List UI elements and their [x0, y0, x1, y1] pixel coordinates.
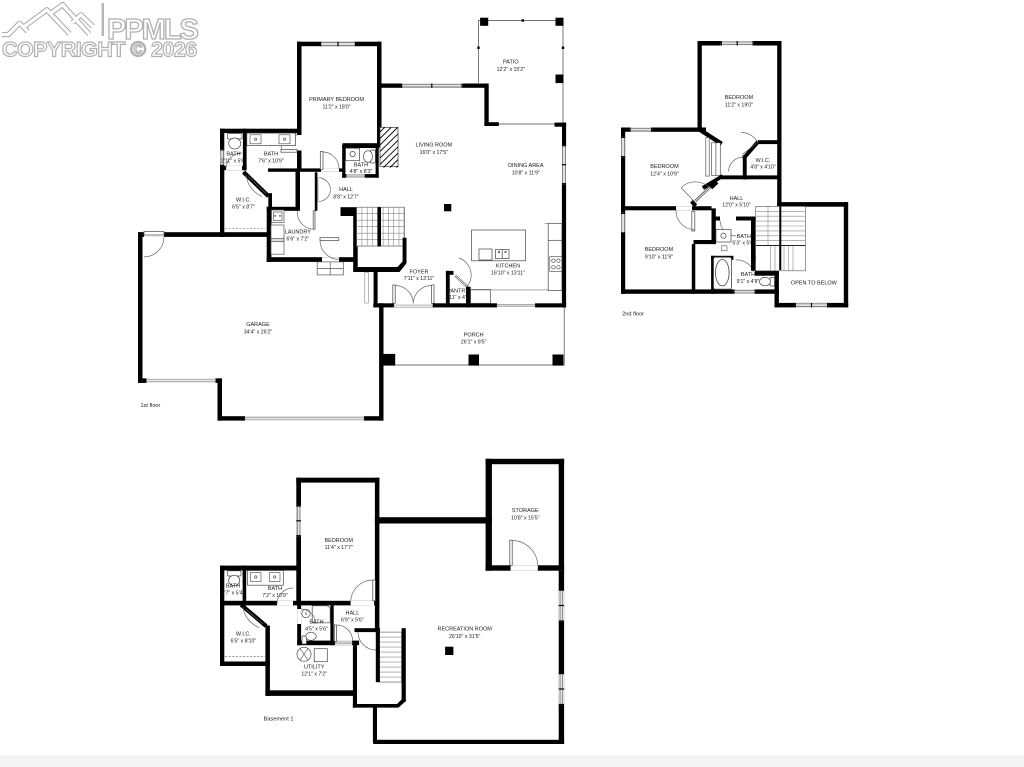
- svg-text:HALL: HALL: [730, 196, 744, 202]
- svg-text:6'9" x 5'6": 6'9" x 5'6": [341, 618, 364, 624]
- svg-text:4'8" x 8'3": 4'8" x 8'3": [350, 169, 373, 175]
- svg-text:10'8" x 11'9": 10'8" x 11'9": [512, 171, 540, 177]
- svg-text:6'5" x 8'10": 6'5" x 8'10": [231, 639, 257, 645]
- svg-text:RECREATION ROOM: RECREATION ROOM: [438, 627, 493, 633]
- svg-text:HALL: HALL: [339, 187, 353, 193]
- svg-text:34'4" x 26'2": 34'4" x 26'2": [244, 329, 273, 335]
- svg-text:11'2" x 19'0": 11'2" x 19'0": [725, 102, 753, 108]
- svg-text:4'8" x 4'10": 4'8" x 4'10": [750, 164, 776, 170]
- svg-text:16'0" x 17'5": 16'0" x 17'5": [420, 150, 449, 156]
- svg-text:12'0" x 5'10": 12'0" x 5'10": [722, 202, 751, 208]
- svg-text:BEDROOM: BEDROOM: [324, 538, 353, 544]
- svg-text:PRIMARY BEDROOM: PRIMARY BEDROOM: [309, 97, 364, 103]
- svg-text:GARAGE: GARAGE: [246, 322, 270, 328]
- svg-text:W.I.C.: W.I.C.: [236, 198, 251, 204]
- svg-text:2'7" x 5'4": 2'7" x 5'4": [222, 591, 245, 597]
- svg-text:7'11" x 13'11": 7'11" x 13'11": [404, 276, 435, 282]
- svg-text:BATH: BATH: [309, 619, 323, 625]
- svg-text:COPYRIGHT © 2026: COPYRIGHT © 2026: [2, 38, 197, 62]
- svg-text:BEDROOM: BEDROOM: [645, 247, 674, 253]
- svg-text:KITCHEN: KITCHEN: [496, 264, 520, 270]
- svg-text:1st floor: 1st floor: [141, 403, 161, 409]
- svg-text:BATH: BATH: [741, 272, 755, 278]
- svg-text:10'8" x 15'5": 10'8" x 15'5": [511, 515, 540, 521]
- svg-text:BATH: BATH: [226, 151, 240, 157]
- svg-text:7'6" x 10'9": 7'6" x 10'9": [258, 159, 284, 165]
- svg-text:2'11" x 5'6": 2'11" x 5'6": [221, 159, 246, 165]
- svg-text:11'4" x 17'7": 11'4" x 17'7": [325, 545, 353, 551]
- svg-text:2nd floor: 2nd floor: [622, 312, 644, 318]
- svg-text:2'11" x 4'6": 2'11" x 4'6": [445, 295, 470, 301]
- svg-text:BATH: BATH: [268, 586, 282, 592]
- svg-text:12'1" x 7'2": 12'1" x 7'2": [301, 672, 327, 678]
- svg-text:DINING AREA: DINING AREA: [508, 163, 544, 169]
- svg-text:HALL: HALL: [346, 610, 360, 616]
- svg-text:STORAGE: STORAGE: [512, 508, 539, 514]
- svg-text:UTILITY: UTILITY: [304, 664, 325, 670]
- svg-text:BATH: BATH: [354, 163, 368, 169]
- svg-text:26'10" x 31'5": 26'10" x 31'5": [449, 634, 480, 640]
- svg-text:LAUNDRY: LAUNDRY: [285, 229, 312, 235]
- svg-text:11'2" x 18'0": 11'2" x 18'0": [322, 104, 350, 110]
- svg-text:BEDROOM: BEDROOM: [650, 164, 679, 170]
- svg-text:9'1" x 4'8": 9'1" x 4'8": [737, 279, 760, 285]
- svg-text:6'6" x 7'2": 6'6" x 7'2": [286, 237, 309, 243]
- svg-text:26'1" x 8'5": 26'1" x 8'5": [461, 340, 487, 346]
- svg-text:12'2" x 15'2": 12'2" x 15'2": [497, 67, 526, 73]
- svg-text:PATIO: PATIO: [503, 60, 519, 66]
- svg-text:PANTRY: PANTRY: [447, 288, 469, 294]
- svg-text:LIVING ROOM: LIVING ROOM: [415, 143, 452, 149]
- svg-text:BATH: BATH: [264, 151, 278, 157]
- svg-text:Basement 1: Basement 1: [264, 717, 294, 723]
- svg-text:BATH: BATH: [737, 234, 751, 240]
- svg-text:W.I.C.: W.I.C.: [756, 158, 771, 164]
- svg-text:8'8" x 12'7": 8'8" x 12'7": [333, 194, 359, 200]
- svg-text:OPEN TO BELOW: OPEN TO BELOW: [791, 281, 838, 287]
- svg-text:PORCH: PORCH: [464, 332, 484, 338]
- svg-text:BEDROOM: BEDROOM: [725, 95, 754, 101]
- svg-text:16'10" x 13'11": 16'10" x 13'11": [491, 270, 525, 276]
- svg-text:BATH: BATH: [226, 584, 240, 590]
- svg-text:4'5" x 5'6": 4'5" x 5'6": [305, 626, 328, 632]
- svg-text:12'4" x 10'9": 12'4" x 10'9": [650, 171, 679, 177]
- svg-text:7'2" x 10'9": 7'2" x 10'9": [262, 593, 288, 599]
- svg-text:6'5" x 8'7": 6'5" x 8'7": [232, 204, 255, 210]
- svg-text:W.I.C.: W.I.C.: [236, 632, 251, 638]
- svg-text:9'10" x 11'9": 9'10" x 11'9": [645, 254, 673, 260]
- svg-text:FOYER: FOYER: [410, 270, 429, 276]
